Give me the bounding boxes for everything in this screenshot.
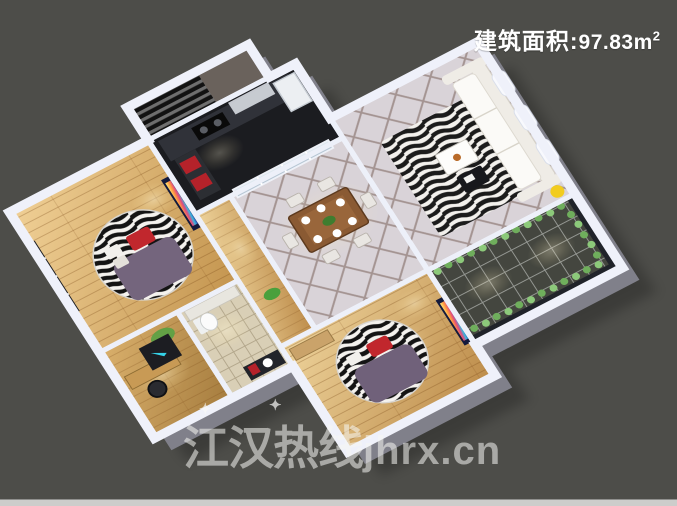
area-label: 建筑面积:: [474, 28, 579, 54]
sparkle-icon: ✦: [269, 396, 282, 414]
area-exponent: 2: [653, 28, 661, 43]
watermark: ✦ ✦ 江汉热线jhrx.cn: [183, 412, 501, 478]
area-caption: 建筑面积:97.83m2: [474, 22, 661, 56]
bottom-strip: [0, 499, 677, 506]
area-unit: m: [634, 31, 653, 54]
render-stage: 建筑面积:97.83m2 ✦ ✦ 江汉热线jhrx.cn: [0, 0, 677, 506]
watermark-site-name: 江汉热线: [183, 422, 363, 474]
watermark-domain: jhrx.cn: [363, 429, 501, 473]
sparkle-icon: ✦: [199, 400, 212, 418]
area-value: 97.83: [579, 31, 634, 54]
